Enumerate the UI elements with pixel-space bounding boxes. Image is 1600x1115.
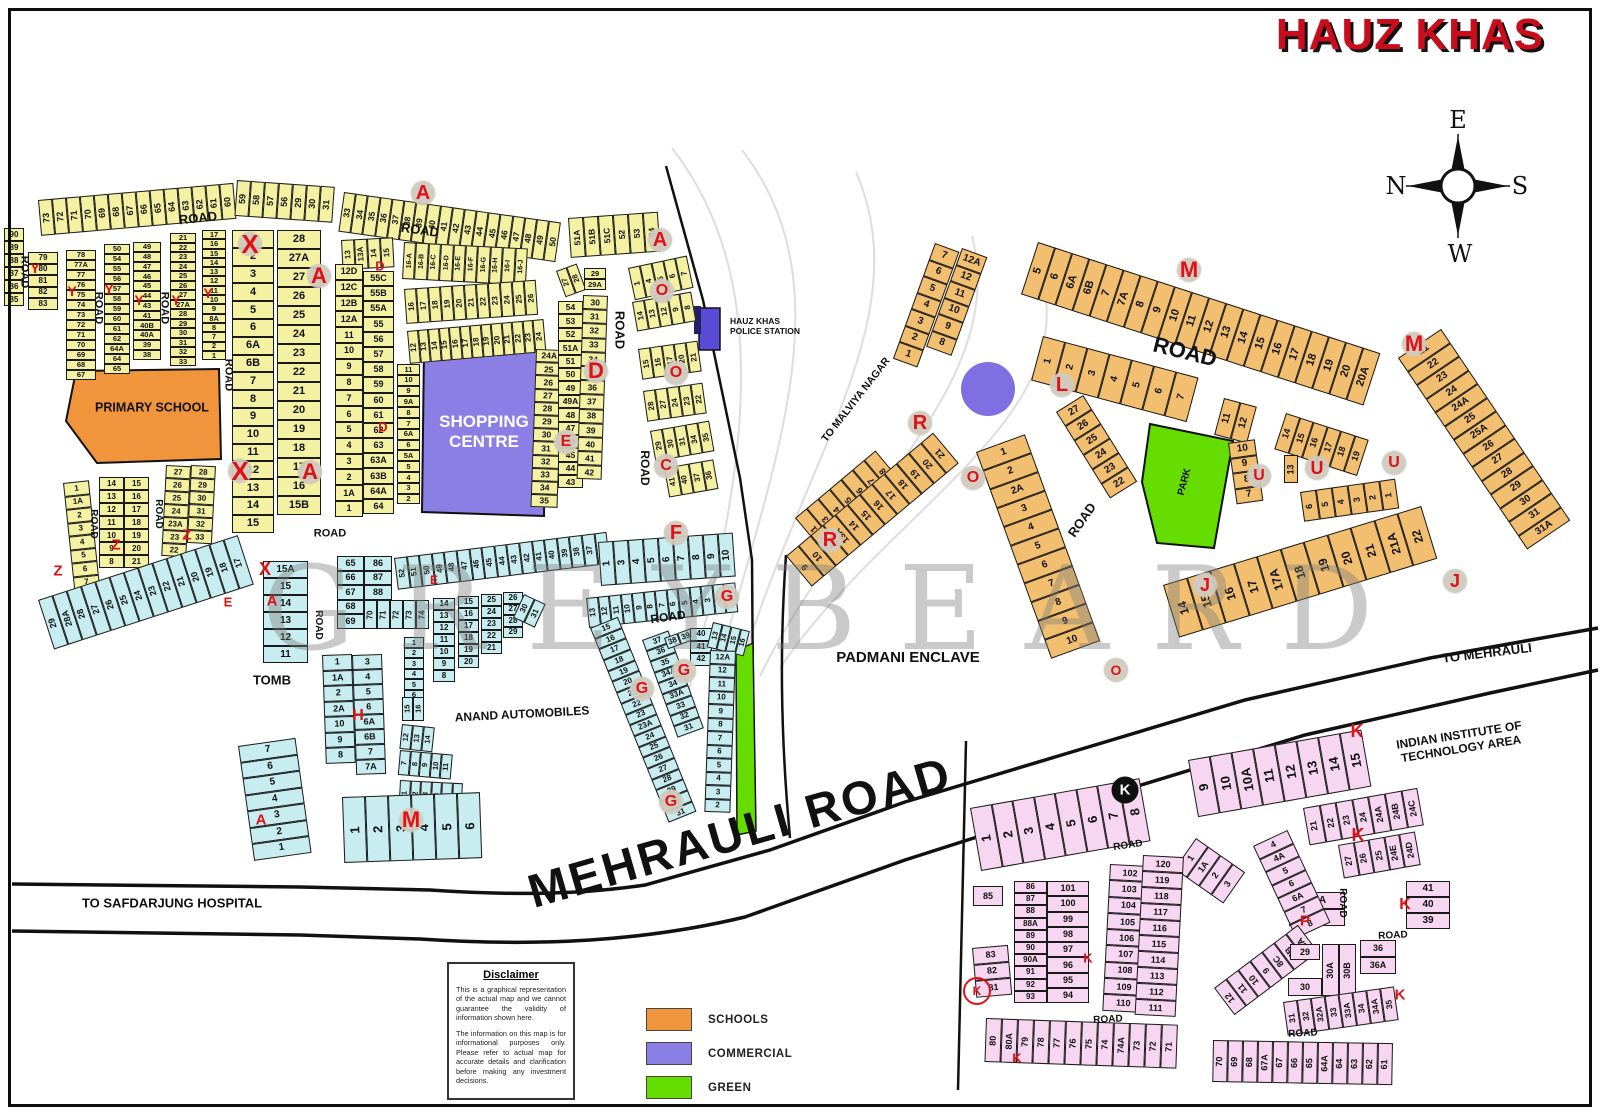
plot-32: 32 [532,454,559,468]
plot-33: 33 [581,338,606,353]
block-marker-y: Y [67,284,76,298]
compass-west: W [1448,240,1473,268]
c-block-70-row: 7071727374 [364,600,429,629]
plot-81: 81 [28,275,58,287]
plot-55B: 55B [363,286,394,301]
road-label: ROAD [18,256,31,288]
plot-13: 13 [202,267,226,276]
plot-87: 87 [1014,893,1047,905]
plot-50: 50 [104,244,130,254]
plot-67A: 67A [1257,1041,1273,1083]
plot-88: 88 [1014,905,1047,917]
plot-7: 7 [232,372,274,390]
block-marker-e: E [551,427,581,457]
plot-10: 10 [718,533,736,578]
road-label: ROAD [158,292,171,324]
block-marker-m: M [1174,255,1204,285]
plot-30: 30 [170,328,196,338]
block-marker-k: K [1395,988,1406,1003]
k-120-col: 120119118117116115114113112111 [1135,855,1184,1017]
plot-8: 8 [433,670,455,682]
block-marker-j: J [1440,566,1470,596]
plot-85: 85 [973,886,1003,906]
k-29-cell: 29 [1290,944,1320,960]
plot-1: 1 [342,796,367,863]
plot-40: 40 [1406,897,1450,913]
block-marker-d: D [378,421,387,434]
plot-10: 10 [324,716,355,733]
plot-1A: 1A [323,669,354,686]
plot-11: 11 [263,646,308,663]
legend: SCHOOLS COMMERCIAL GREEN [646,1008,792,1110]
commercial-circle [961,362,1015,416]
c-small-row-12: 121314 [399,724,434,752]
plot-21: 21 [170,233,196,243]
plot-60: 60 [104,314,130,324]
plot-33: 33 [531,468,558,482]
schools-label: SCHOOLS [708,1014,768,1026]
block-marker-m: M [1399,329,1429,359]
plot-93: 93 [1014,991,1047,1003]
plot-65: 65 [104,364,130,374]
block-marker-r: R [815,525,845,555]
plot-2: 2 [202,342,226,351]
plot-14: 14 [232,497,274,515]
road-label: ROAD [1093,1013,1123,1026]
plot-41: 41 [1406,881,1450,897]
plot-1: 1 [335,501,363,517]
plot-88: 88 [364,585,392,600]
plot-22: 22 [481,630,502,642]
plot-69: 69 [337,614,364,629]
plot-91: 91 [1014,966,1047,978]
d-col-a: 12D12C12B12A1110987654321A1 [335,264,363,517]
plot-15: 15 [458,596,479,608]
plot-13: 13 [433,610,455,622]
plot-29: 29 [533,415,560,429]
block-marker-a: A [408,178,438,208]
plot-25: 25 [170,271,196,281]
plot-22: 22 [170,243,196,253]
plot-64: 64 [1332,1042,1348,1084]
plot-15: 15 [124,477,149,490]
plot-26: 26 [524,280,538,316]
plot-63: 63 [1347,1042,1363,1084]
plot-9: 9 [708,704,734,718]
plot-55A: 55A [363,301,394,316]
block-marker-x: X [235,229,265,259]
plot-66: 66 [1287,1041,1303,1083]
plot-74: 74 [416,600,429,629]
block-marker-x: X [225,456,255,486]
plot-12A: 12A [335,311,363,327]
green-swatch [646,1076,692,1099]
plot-16: 16 [202,239,226,248]
plot-2: 2 [365,795,390,862]
block-marker-k: K [1012,1052,1021,1065]
block-marker-o: O [958,463,988,493]
plot-39: 39 [1406,913,1450,929]
plot-71: 71 [377,600,390,629]
block-marker-g: G [712,582,742,612]
block-marker-y: Y [134,293,143,307]
plot-100: 100 [1047,896,1089,911]
plot-8: 8 [325,747,356,764]
plot-23: 23 [277,344,321,363]
plot-55: 55 [104,264,130,274]
plot-15: 15 [402,697,413,721]
road-label: ROAD [152,499,164,528]
disclaimer-paragraph-2: The information on this map is for infor… [456,1029,566,1086]
c-small-row-7: 7891011 [398,750,452,779]
road-label: ROAD [314,528,346,541]
plot-12: 12 [99,503,124,516]
block-marker-x: X [259,560,271,578]
plot-10: 10 [397,375,420,386]
plot-30: 30 [189,491,215,505]
schools-swatch [646,1008,692,1031]
plot-9: 9 [325,731,356,748]
block-marker-e: E [224,596,233,609]
plot-75: 75 [1080,1021,1098,1066]
block-marker-f: F [661,518,691,548]
plot-83: 83 [28,298,58,310]
x-block-col: 1234566A6B789101112131415 [232,230,274,533]
c-block-65-col: 6566676869 [337,556,364,629]
plot-2: 2 [323,685,354,702]
plot-16: 16 [413,697,424,721]
plot-23: 23 [170,252,196,262]
plot-25: 25 [277,306,321,325]
plot-15B: 15B [277,496,321,515]
plot-46: 46 [133,271,161,281]
plot-13: 13 [99,490,124,503]
plot-8: 8 [99,555,124,568]
compass-rose: E S W N [1386,106,1529,268]
plot-2: 2 [404,648,424,659]
plot-31: 31 [188,504,214,518]
plot-69: 69 [1227,1040,1243,1082]
k-30-cell: 30 [1288,978,1322,996]
plot-24: 24 [163,504,189,518]
block-marker-a: A [295,457,325,487]
plot-5: 5 [434,793,459,860]
plot-12: 12 [263,629,308,646]
disclaimer-box: Disclaimer This is a graphical represent… [447,962,575,1100]
primary-school-label: PRIMARY SCHOOL [95,401,209,416]
plot-5: 5 [397,461,420,472]
plot-4: 4 [404,669,424,680]
plot-8: 8 [397,407,420,418]
h-block-col-a: 11A22A1098 [322,654,356,763]
plot-31: 31 [582,309,607,324]
plot-29: 29 [170,319,196,329]
plot-19: 19 [124,529,149,542]
plot-89: 89 [1014,930,1047,942]
plot-10: 10 [335,343,363,359]
plot-86: 86 [1014,881,1047,893]
plot-8: 8 [202,323,226,332]
plot-37: 37 [579,394,604,409]
plot-87: 87 [364,571,392,586]
block-marker-u: U [1302,453,1332,483]
y-top-strip-b: 59585756293031 [234,180,334,223]
c-col-15: 151617181920 [458,596,479,668]
plot-32: 32 [582,323,607,338]
plot-6: 6 [232,319,274,337]
plot-40: 40 [578,437,603,452]
plot-6B: 6B [232,355,274,373]
plot-80: 80 [984,1018,1002,1063]
plot-9: 9 [397,386,420,397]
plot-7: 7 [202,332,226,341]
plot-16: 16 [458,608,479,620]
block-marker-y: Y [171,293,180,307]
plot-29A: 29A [584,279,606,290]
block-marker-a: A [256,813,267,828]
plot-77: 77 [1048,1020,1066,1065]
plot-28: 28 [190,465,216,479]
c-col-14: 141312111098 [433,598,455,682]
plot-42: 42 [577,465,602,480]
plot-28: 28 [277,230,321,249]
plot-18: 18 [124,516,149,529]
k-86-col: 86878888A899090A919293 [1014,881,1047,1003]
plot-30: 30 [583,295,608,310]
plot-6: 6 [335,406,363,422]
plot-85: 85 [4,293,24,306]
plot-5: 5 [335,422,363,438]
plot-78: 78 [66,250,96,260]
plot-111: 111 [1135,999,1177,1017]
plot-98: 98 [1047,927,1089,942]
block-marker-r: R [905,408,935,438]
plot-7: 7 [397,418,420,429]
plot-29: 29 [584,268,606,279]
plot-7A: 7A [356,759,387,775]
y-col-3: 5054555657585960616264A6465 [104,244,130,374]
c-block-86-col: 868788 [364,556,392,600]
plot-27: 27 [165,465,191,479]
plot-59: 59 [104,304,130,314]
plot-73: 73 [1128,1023,1146,1068]
plot-54: 54 [104,254,130,264]
plot-66: 66 [337,571,364,586]
plot-7: 7 [355,744,386,760]
plot-7: 7 [707,731,733,745]
plot-22: 22 [277,363,321,382]
block-marker-k: K [1399,897,1411,913]
plot-2A: 2A [324,700,355,717]
disclaimer-paragraph-1: This is a graphical representation of th… [456,985,566,1023]
plot-65: 65 [1302,1042,1318,1084]
k-30a-pair: 30A30B [1322,944,1356,996]
plot-77A: 77A [66,260,96,270]
plot-1: 1 [404,637,424,648]
police-station-label: HAUZ KHAS POLICE STATION [730,316,800,336]
road-label: ROAD [312,610,324,639]
plot-64A: 64A [363,484,394,499]
plot-28: 28 [170,309,196,319]
road-label: ROAD [222,359,235,391]
block-marker-k: K [1352,826,1365,844]
plot-6: 6 [457,792,482,859]
plot-11: 11 [397,364,420,375]
block-marker-g: G [656,787,686,817]
plot-29: 29 [190,478,216,492]
plot-4: 4 [335,438,363,454]
z-block-col-2a: 141312111098 [99,477,124,568]
block-marker-a: A [267,594,278,609]
plot-26: 26 [170,281,196,291]
block-marker-z: Z [182,528,191,543]
compass-south: S [1512,172,1528,200]
plot-24: 24 [170,262,196,272]
plot-8A: 8A [202,314,226,323]
plot-31: 31 [170,338,196,348]
plot-35: 35 [530,494,557,508]
plot-67: 67 [337,585,364,600]
plot-4: 4 [397,472,420,483]
plot-9: 9 [202,304,226,313]
plot-13: 13 [1284,455,1298,483]
plot-69: 69 [66,350,96,360]
k-101-col: 101100999897969594 [1047,881,1089,1003]
plot-74: 74 [1096,1022,1114,1067]
plot-3: 3 [397,483,420,494]
plot-65: 65 [337,556,364,571]
plot-39: 39 [578,423,603,438]
block-marker-y: Y [30,261,39,275]
block-marker-g: G [627,674,657,704]
block-marker-o: O [647,276,677,306]
map-title: HAUZ KHAS [1276,10,1544,60]
plot-10: 10 [708,690,734,704]
to-safdarjung-hospital-label: TO SAFDARJUNG HOSPITAL [82,895,262,910]
plot-25: 25 [164,491,190,505]
plot-8: 8 [232,390,274,408]
plot-49: 49 [133,242,161,252]
plot-6B: 6B [355,729,386,745]
block-marker-y: Y [203,286,212,300]
plot-18: 18 [458,632,479,644]
plot-101: 101 [1047,881,1089,896]
plot-71: 71 [1160,1024,1178,1069]
plot-45: 45 [133,281,161,291]
plot-12: 12 [433,622,455,634]
plot-25: 25 [481,594,502,606]
plot-6: 6 [706,744,732,758]
plot-31: 31 [318,186,334,223]
plot-33: 33 [170,357,196,367]
commercial-swatch [646,1042,692,1065]
disclaimer-title: Disclaimer [456,969,566,981]
plot-40A: 40A [133,330,161,340]
plot-21: 21 [481,642,502,654]
plot-74A: 74A [1112,1022,1130,1067]
plot-63A: 63A [363,453,394,468]
plot-3: 3 [404,658,424,669]
plot-2: 2 [397,494,420,505]
plot-17: 17 [202,230,226,239]
block-marker-k: K [1083,952,1092,965]
plot-99: 99 [1047,912,1089,927]
plot-4: 4 [353,669,384,685]
plot-8: 8 [335,375,363,391]
plot-24: 24 [481,606,502,618]
plot-11: 11 [709,677,735,691]
compass-north: N [1386,172,1407,200]
police-station-area [699,308,720,350]
shopping-centre-label: SHOPPING CENTRE [439,412,529,452]
k-85-cell: 85 [973,886,1003,906]
block-marker-d: D [375,260,384,273]
d-col-b: 55C55B55A55565758596061626363A63B64A64 [363,271,394,514]
plot-12C: 12C [335,280,363,296]
road-label: ROAD [638,450,652,485]
block-marker-z: Z [111,538,120,553]
plot-5A: 5A [397,450,420,461]
road-label: ROAD [1288,1027,1318,1040]
plot-70: 70 [66,340,96,350]
block-marker-m: M [396,805,426,835]
plot-20: 20 [277,401,321,420]
plot-70: 70 [1212,1040,1228,1082]
plot-2: 2 [335,469,363,485]
plot-15: 15 [232,515,274,533]
road-label: ROAD [92,292,105,324]
plot-20: 20 [458,656,479,668]
d2-29: 2929A [584,268,606,290]
plot-34: 34 [531,481,558,495]
plot-11: 11 [99,516,124,529]
plot-3: 3 [705,785,731,799]
row-16a: 16-A16-B16-C16-D16-E16-F16-G16-H16-I16-J [402,242,528,285]
plot-90A: 90A [1014,954,1047,966]
plot-89: 89 [4,241,24,254]
plot-68: 68 [337,600,364,615]
block-marker-d: D [581,356,611,386]
block-marker-h: H [352,708,364,724]
plot-62: 62 [104,334,130,344]
plot-63B: 63B [363,468,394,483]
plot-47: 47 [133,262,161,272]
plot-29: 29 [503,627,523,639]
road-label: ROAD [1378,929,1408,942]
plot-6A: 6A [232,337,274,355]
plot-12B: 12B [335,296,363,312]
green-label: GREEN [708,1082,751,1094]
plot-64A: 64A [1317,1042,1333,1084]
tomb-label: TOMB [253,672,291,687]
plot-14: 14 [433,598,455,610]
plot-6A: 6A [397,429,420,440]
plot-90: 90 [4,228,24,241]
commercial-label: COMMERCIAL [708,1048,792,1060]
plot-53: 53 [558,314,583,327]
plot-9A: 9A [397,396,420,407]
z-block-col-2b: 15161718192021 [124,477,149,568]
block-marker-u: U [1244,461,1274,491]
block-marker-a: A [304,261,334,291]
plot-17: 17 [458,620,479,632]
block-marker-c: C [651,451,681,481]
hauz-khas-map: E S W N HAUZ KHAS GREYBEARD Disclaimer T… [0,0,1600,1115]
plot-94: 94 [1047,988,1089,1003]
plot-9: 9 [433,658,455,670]
k-70-strip: 70696867A67666564A64636261 [1212,1040,1393,1085]
plot-3: 3 [232,266,274,284]
